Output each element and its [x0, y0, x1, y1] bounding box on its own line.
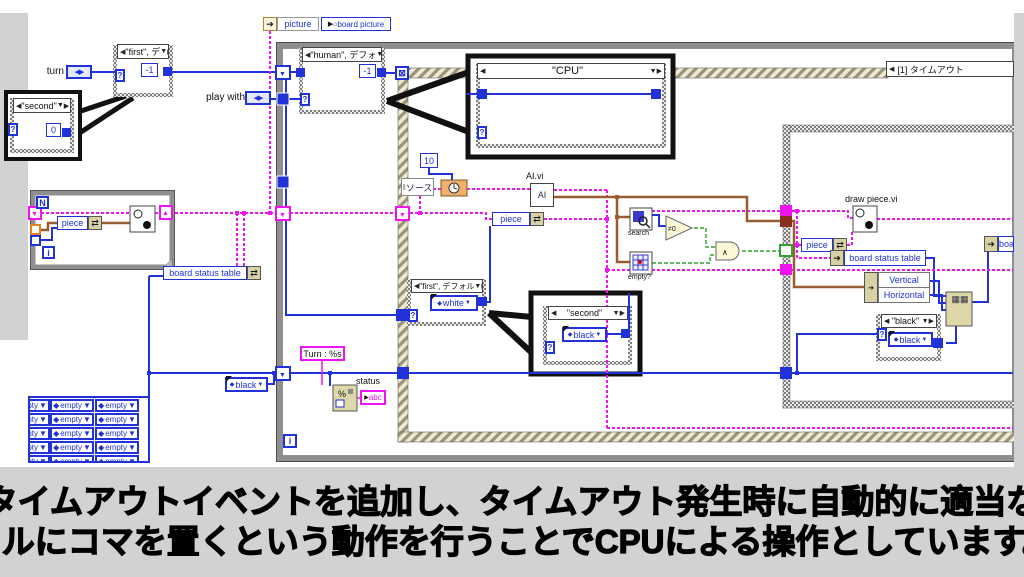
board-status-table-local[interactable]: board status table [844, 250, 926, 266]
picture-label[interactable]: picture [277, 17, 319, 31]
next-case-icon[interactable]: ▶ [167, 48, 169, 56]
caption-area: タイムアウトイベントを追加し、タイムアウト発生時に自動的に適当な セルにコマを置… [0, 467, 1024, 577]
constant-minus-one[interactable]: -1 [359, 64, 376, 78]
case-selector-first-top[interactable]: ◀ "first", デ ▼ ▶ [117, 44, 169, 59]
neq-glyph: ≠0 [668, 226, 676, 233]
event-timeout-terminal[interactable]: ⊠ [395, 66, 409, 80]
case-selector-terminal: ? [477, 126, 487, 139]
empty-array[interactable]: ◆empty▼◆empty▼◆empty▼◆empty▼◆empty▼◆empt… [28, 396, 150, 463]
event-case-selector[interactable]: ◀ [1] タイムアウト [886, 61, 1014, 77]
dropdown-icon: ▼ [83, 416, 91, 424]
dropdown-icon: ▼ [128, 416, 136, 424]
constant-zero[interactable]: 0 [46, 123, 61, 137]
empty-enum-cell[interactable]: ◆empty▼ [50, 455, 94, 463]
unbundle-node-icon[interactable]: ⇄ [530, 212, 544, 226]
bundle-node-icon[interactable]: ⇄ [88, 216, 102, 230]
local-variable-icon[interactable]: ➔ [830, 250, 844, 266]
case-selector-terminal: ? [545, 341, 555, 354]
next-case-icon[interactable]: ▶ [929, 317, 934, 325]
empty-enum-cell[interactable]: ◆empty▼ [28, 441, 50, 454]
enum-icon: ◆ [53, 416, 59, 424]
empty-enum-cell[interactable]: ◆empty▼ [28, 413, 50, 426]
dropdown-icon: ▼ [128, 444, 136, 452]
enum-icon: ◆ [98, 416, 104, 424]
event-structure-bottom-border[interactable] [398, 432, 1018, 442]
percent-glyph: % [338, 389, 346, 399]
dropdown-icon: ▼ [921, 337, 927, 343]
enum-icon: ◆ [98, 444, 104, 452]
case-dropdown-icon[interactable]: ▼ [922, 318, 929, 325]
play-with-terminal[interactable]: ◀▶ [245, 91, 271, 105]
svg-text:▲: ▲ [162, 210, 169, 217]
enum-icon: ◆ [53, 430, 59, 438]
inner-case-bottom-border[interactable] [783, 401, 1016, 408]
dropdown-icon: ▼ [39, 444, 47, 452]
enum-constant-black[interactable]: ◆ black ▼ [562, 327, 607, 342]
case-selector-terminal: ? [408, 309, 418, 322]
empty-enum-cell[interactable]: ◆empty▼ [95, 399, 139, 412]
play-with-label: play with [199, 92, 245, 103]
case-dropdown-icon[interactable]: ▼ [650, 68, 657, 75]
board-local-clipped[interactable]: boar [998, 236, 1014, 252]
turn-terminal[interactable]: ◀▶ [66, 65, 92, 79]
draw-piece-subvi-icon[interactable] [853, 206, 877, 232]
empty-enum-cell[interactable]: ◆empty▼ [95, 427, 139, 440]
empty-enum-cell[interactable]: ◆empty▼ [50, 399, 94, 412]
empty-enum-cell[interactable]: ◆empty▼ [50, 441, 94, 454]
search-node-label: search [628, 230, 649, 237]
enum-icon: ◆ [53, 444, 59, 452]
enum-constant-white[interactable]: ◆ white ▼ [430, 295, 478, 311]
caption-line-2: セルにコマを置くという動作を行うことでCPUによる操作としています。 [0, 522, 1024, 562]
picture-local-variable-icon[interactable]: ➔ [263, 17, 277, 31]
ai-vi-label: AI.vi [526, 171, 544, 181]
case-selector-second-mid[interactable]: ◀ "second" ▼ ▶ [548, 306, 628, 320]
unbundle-horizontal-field[interactable]: Horizontal [878, 287, 930, 303]
for-loop-iteration-terminal[interactable]: i [42, 246, 55, 259]
dropdown-icon: ▼ [83, 444, 91, 452]
enum-icon: ◆ [98, 430, 104, 438]
caption-line-1: タイムアウトイベントを追加し、タイムアウト発生時に自動的に適当な [0, 482, 1024, 522]
svg-text:▼: ▼ [31, 211, 38, 218]
case-dropdown-icon[interactable]: ▼ [474, 283, 481, 290]
status-string-indicator[interactable]: ▶ abc [360, 390, 386, 405]
labview-block-diagram: ▼ ▼ ▼ ▼ ▼ ▲ [0, 0, 1024, 577]
case-dropdown-icon[interactable]: ▼ [57, 102, 64, 109]
next-case-icon[interactable]: ▶ [64, 102, 69, 110]
red-dot-icon [638, 260, 642, 264]
next-case-icon[interactable]: ▶ [481, 282, 483, 290]
and-glyph: ∧ [722, 248, 728, 257]
hourglass-icon: ⊠ [398, 68, 406, 79]
enum-constant-black[interactable]: ◆ black ▼ [225, 377, 268, 392]
case-dropdown-icon[interactable]: ▼ [613, 310, 620, 317]
board-status-table-bundle-label[interactable]: board status table [163, 266, 247, 280]
event-data-node-source[interactable]: ‖ ソース [401, 178, 434, 196]
inner-case-top-border[interactable] [783, 125, 1016, 132]
event-structure-left-border[interactable] [398, 68, 408, 442]
dropdown-icon: ▼ [83, 458, 91, 464]
case-selector-human[interactable]: ◀ "human", デフォ ▼ ▶ [302, 47, 382, 62]
case-selector-terminal: ? [115, 69, 125, 82]
bundle-node-icon[interactable]: ⇄ [247, 266, 261, 280]
enum-icon: ◆ [53, 458, 59, 464]
dropdown-icon: ▼ [39, 416, 47, 424]
enum-icon: ◆ [894, 336, 899, 343]
enum-constant-black[interactable]: ◆ black ▼ [888, 332, 933, 347]
enum-terminal-icon: ◀▶ [75, 68, 84, 76]
dropdown-icon: ▼ [39, 458, 47, 464]
case-selector-black[interactable]: ◀ "black" ▼ ▶ [881, 314, 937, 328]
constant-minus-one[interactable]: -1 [141, 63, 158, 77]
piece-unbundle-label[interactable]: piece [801, 238, 833, 252]
enum-terminal-icon: ◀▶ [254, 94, 263, 102]
next-case-icon[interactable]: ▶ [620, 309, 625, 317]
piece-bundle-label[interactable]: piece [57, 216, 88, 230]
enum-icon: ◆ [53, 402, 59, 410]
case-selector-first-default[interactable]: ◀ "first", デフォル ▼ ▶ [411, 279, 483, 293]
property-node-icon: ▶⌂ [328, 20, 338, 28]
draw-piece-vi-label: draw piece.vi [845, 194, 898, 204]
while-loop-iteration-terminal[interactable]: i [283, 434, 297, 448]
svg-text:▼: ▼ [279, 372, 286, 379]
case-dropdown-icon[interactable]: ▼ [160, 48, 167, 55]
dropdown-icon: ▼ [465, 300, 471, 306]
dropdown-icon: ▼ [595, 332, 601, 338]
unbundle-by-name-icon[interactable]: ➔ [864, 272, 878, 303]
enum-icon: ◆ [98, 458, 104, 464]
draw-piece-subvi-icon[interactable] [130, 206, 155, 232]
empty-enum-cell[interactable]: ◆empty▼ [95, 413, 139, 426]
case-selector-terminal: ? [877, 328, 887, 341]
unbundle-vertical-field[interactable]: Vertical [878, 272, 930, 288]
status-label: status [356, 376, 380, 386]
case-dropdown-icon[interactable]: ▼ [376, 51, 382, 58]
empty-enum-cell[interactable]: ◆empty▼ [28, 399, 50, 412]
enum-icon: ◆ [230, 381, 235, 388]
constant-ten[interactable]: 10 [420, 153, 438, 168]
case-selector-cpu[interactable]: ◀ "CPU" ▼ ▶ [477, 63, 665, 79]
right-gray-margin [1014, 13, 1024, 467]
dropdown-icon: ▼ [83, 402, 91, 410]
dropdown-icon: ▼ [128, 402, 136, 410]
enum-icon: ◆ [568, 331, 573, 338]
enum-icon: ◆ [98, 402, 104, 410]
dropdown-icon: ▼ [83, 430, 91, 438]
for-loop-count-terminal[interactable]: N [36, 196, 49, 209]
dropdown-icon: ▼ [128, 430, 136, 438]
empty-enum-cell[interactable]: ◆empty▼ [28, 427, 50, 440]
board-picture-property-node[interactable]: ▶⌂ board picture [321, 17, 391, 31]
next-case-icon[interactable]: ▶ [657, 67, 662, 75]
empty-enum-cell[interactable]: ◆empty▼ [50, 413, 94, 426]
turn-format-string-constant[interactable]: Turn : %s [300, 346, 345, 361]
empty-enum-cell[interactable]: ◆empty▼ [50, 427, 94, 440]
black-piece-icon [143, 221, 151, 229]
turn-label: turn [42, 66, 64, 77]
black-piece-icon [865, 221, 873, 229]
svg-text:▼: ▼ [279, 71, 286, 78]
case-selector-terminal: ? [300, 93, 310, 106]
dropdown-icon: ▼ [39, 430, 47, 438]
case-selector-second-top[interactable]: ◀ "second" ▼ ▶ [13, 98, 71, 113]
dropdown-icon: ▼ [39, 402, 47, 410]
empty-enum-cell[interactable]: ◆empty▼ [28, 455, 50, 463]
dropdown-icon: ▼ [128, 458, 136, 464]
enum-icon: ◆ [437, 300, 442, 307]
piece-unbundle-label[interactable]: piece [492, 212, 530, 226]
svg-text:▼: ▼ [399, 212, 406, 219]
arrow-glyph: ➔ [266, 19, 274, 30]
empty-enum-cell[interactable]: ◆empty▼ [95, 441, 139, 454]
ai-subvi-icon[interactable]: AI [530, 183, 554, 207]
svg-text:▼: ▼ [279, 212, 286, 219]
replace-array-glyphs: ▦▦ [948, 295, 972, 323]
empty-node-label: empty? [628, 274, 651, 281]
case-selector-terminal: ? [8, 123, 18, 136]
local-variable-icon[interactable]: ➔ [984, 236, 998, 252]
dropdown-icon: ▼ [257, 382, 263, 388]
empty-enum-cell[interactable]: ◆empty▼ [95, 455, 139, 463]
